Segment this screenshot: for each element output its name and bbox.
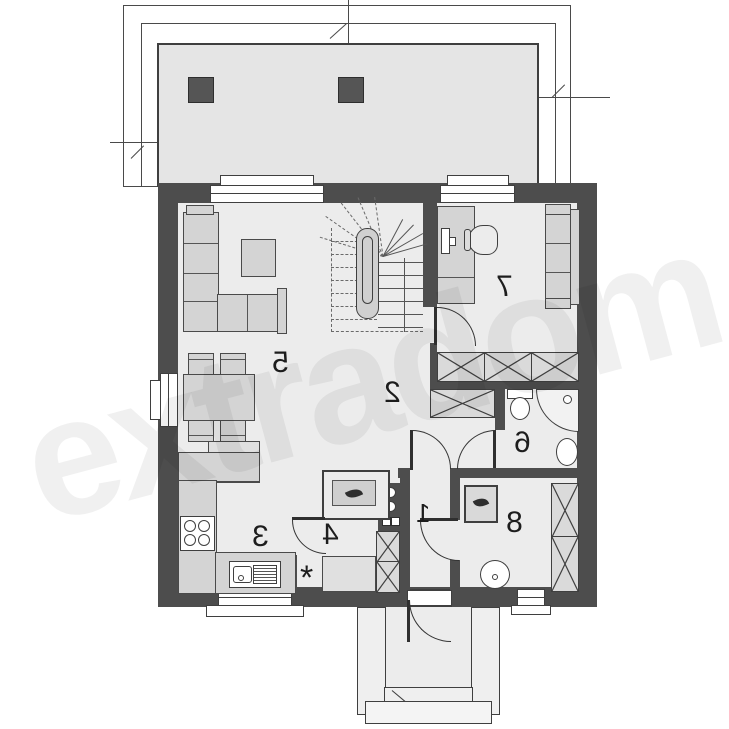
room7-sofa-arm-top: [545, 204, 571, 215]
sofa-armrest-right: [277, 288, 287, 334]
window-dining-left: [160, 373, 178, 427]
stairs-tread: [378, 314, 423, 315]
porch-step-2: [365, 701, 492, 724]
window-room7-top-sill: [447, 175, 509, 186]
window-room7-top: [440, 185, 515, 203]
wall-bath-left: [495, 389, 505, 430]
flue-square-2: [391, 517, 400, 526]
room-label-3: 3: [252, 522, 269, 552]
room-label-1: 1: [416, 498, 430, 528]
office-chair: [468, 225, 498, 255]
kitchen-counter-top: [178, 452, 260, 482]
stairs-tread: [378, 301, 423, 302]
dining-chair: [188, 420, 214, 442]
flame-icon: [345, 486, 363, 501]
room8-wardrobe-top: [551, 483, 579, 538]
wall-wardrobe-stub: [430, 343, 437, 383]
wardrobe-box: [484, 352, 532, 382]
stove: [180, 516, 215, 551]
dining-chair: [220, 353, 246, 375]
room8-wardrobe-bottom: [551, 536, 579, 592]
wall-right: [577, 183, 597, 607]
shower-head: [563, 395, 572, 404]
stairs-tread: [378, 262, 423, 263]
asterisk-symbol: *: [300, 568, 313, 588]
stairs-direction-arrow: [362, 236, 373, 304]
fireplace: [322, 470, 390, 520]
room4-tray: [322, 556, 376, 592]
desk: [437, 206, 475, 304]
coffee-table: [241, 239, 276, 277]
wall-room7-left: [423, 203, 437, 307]
roof-tick-right-line: [537, 97, 610, 98]
terrace-column-right: [338, 77, 364, 103]
terrace: [157, 43, 539, 187]
vestibule-wardrobe-bottom: [376, 561, 400, 593]
sink-drainer: [253, 565, 277, 584]
floor-plan-canvas: 5 3 * 4 2 7: [0, 0, 729, 729]
stairs-tread-divider: [404, 258, 405, 332]
room-label-2: 2: [384, 378, 401, 408]
dining-chair: [220, 420, 246, 442]
stairs-tread: [378, 288, 423, 289]
vestibule-wardrobe-top: [376, 531, 400, 563]
wardrobe-box: [437, 352, 485, 382]
window-living-top-sill: [220, 175, 314, 186]
window-room8-bottom-sill: [511, 605, 551, 615]
room8-washbasin-drain: [492, 574, 498, 580]
stairs-dashed-bottom: [331, 331, 423, 332]
hall-wardrobe: [430, 389, 495, 418]
stairs-dashed-tread: [331, 319, 377, 320]
stairs-tread: [378, 327, 423, 328]
window-dining-left-sill: [150, 380, 161, 420]
dining-chair: [188, 353, 214, 375]
dining-table: [183, 374, 255, 421]
room-label-5: 5: [272, 348, 289, 378]
stairs-tread: [378, 275, 423, 276]
toilet-bowl: [510, 397, 530, 420]
sofa-armrest-top: [186, 205, 214, 215]
boiler: [464, 485, 498, 523]
room-label-7: 7: [496, 272, 513, 302]
kitchen-sink: [229, 561, 281, 588]
room7-sofa-seat: [545, 213, 571, 301]
roof-ridge-line: [348, 0, 349, 43]
room-label-4: 4: [322, 520, 339, 550]
room-label-8: 8: [506, 508, 523, 538]
porch-pillar-left: [357, 607, 386, 715]
porch-pillar-right: [471, 607, 500, 715]
bath-washbasin: [556, 438, 578, 466]
monitor-stand: [449, 237, 456, 246]
window-living-top: [210, 185, 324, 203]
wardrobe-box: [531, 352, 579, 382]
wall-vestibule-right-bottom: [450, 560, 460, 592]
roof-tick-left-line: [110, 142, 157, 143]
flame-icon: [473, 495, 489, 509]
room-label-6: 6: [514, 428, 531, 458]
corner-sofa-back: [183, 212, 219, 332]
terrace-column-left: [188, 77, 214, 103]
window-kitchen-bottom-sill: [206, 605, 304, 617]
wall-vestibule-right-top: [450, 478, 460, 520]
wall-hall-bottom-a: [398, 468, 410, 478]
room7-sofa-arm-bottom: [545, 298, 571, 309]
office-chair-back: [464, 229, 471, 251]
wall-hall-bottom-b: [450, 468, 597, 478]
corner-sofa-seat: [217, 294, 279, 332]
